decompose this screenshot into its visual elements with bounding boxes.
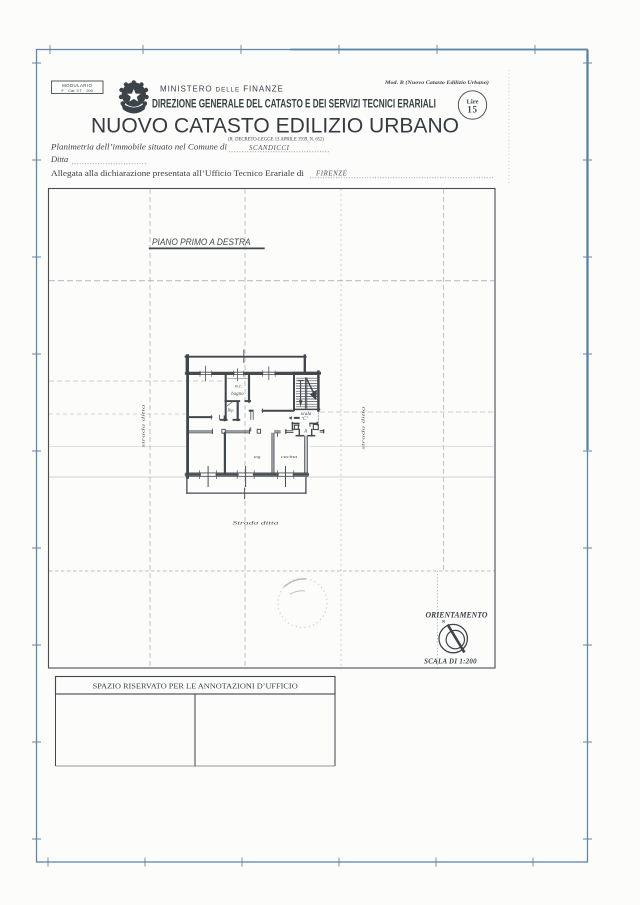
svg-text:‘C’: ‘C’ <box>301 416 308 422</box>
svg-text:DIREZIONE GENERALE DEL CATASTO: DIREZIONE GENERALE DEL CATASTO E DEI SER… <box>152 99 436 111</box>
svg-text:15: 15 <box>467 105 478 115</box>
svg-text:A: A <box>303 430 307 435</box>
svg-text:w.c.: w.c. <box>235 384 242 389</box>
svg-text:(R. DECRETO-LEGGE 13 APRILE 19: (R. DECRETO-LEGGE 13 APRILE 1939, N. 652… <box>228 138 324 143</box>
svg-text:Strada ditta: Strada ditta <box>233 521 280 527</box>
svg-text:SPAZIO RISERVATO PER LE ANNOTA: SPAZIO RISERVATO PER LE ANNOTAZIONI D’UF… <box>93 682 298 691</box>
svg-text:Allegata alla dichiarazione pr: Allegata alla dichiarazione presentata a… <box>51 169 305 178</box>
svg-text:Ditta: Ditta <box>50 155 68 164</box>
svg-text:sog.: sog. <box>254 454 262 459</box>
svg-text:F Cat. 3 T 205: F Cat. 3 T 205 <box>62 88 93 93</box>
svg-text:MINISTERO DELLE FINANZE: MINISTERO DELLE FINANZE <box>160 85 284 94</box>
svg-text:strada ditta: strada ditta <box>141 403 146 448</box>
svg-text:Planimetria dell’immobile situ: Planimetria dell’immobile situato nel Co… <box>50 143 228 152</box>
svg-text:SCANDICCI: SCANDICCI <box>249 145 290 152</box>
svg-text:FIRENZE: FIRENZE <box>315 171 348 178</box>
svg-text:SCALA DI 1:200: SCALA DI 1:200 <box>424 659 477 666</box>
svg-text:bagno: bagno <box>231 392 244 397</box>
svg-text:cucina: cucina <box>281 454 298 459</box>
svg-text:Mod. B (Nuovo Catasto Edilizio: Mod. B (Nuovo Catasto Edilizio Urbano) <box>384 79 489 86</box>
svg-text:N: N <box>442 619 445 624</box>
svg-text:NUOVO CATASTO EDILIZIO URBANO: NUOVO CATASTO EDILIZIO URBANO <box>91 114 459 138</box>
svg-text:strada ditta: strada ditta <box>361 405 366 450</box>
svg-text:PIANO PRIMO A DESTRA: PIANO PRIMO A DESTRA <box>152 237 251 247</box>
svg-text:ORIENTAMENTO: ORIENTAMENTO <box>426 610 489 620</box>
svg-text:Rip.: Rip. <box>226 408 234 413</box>
